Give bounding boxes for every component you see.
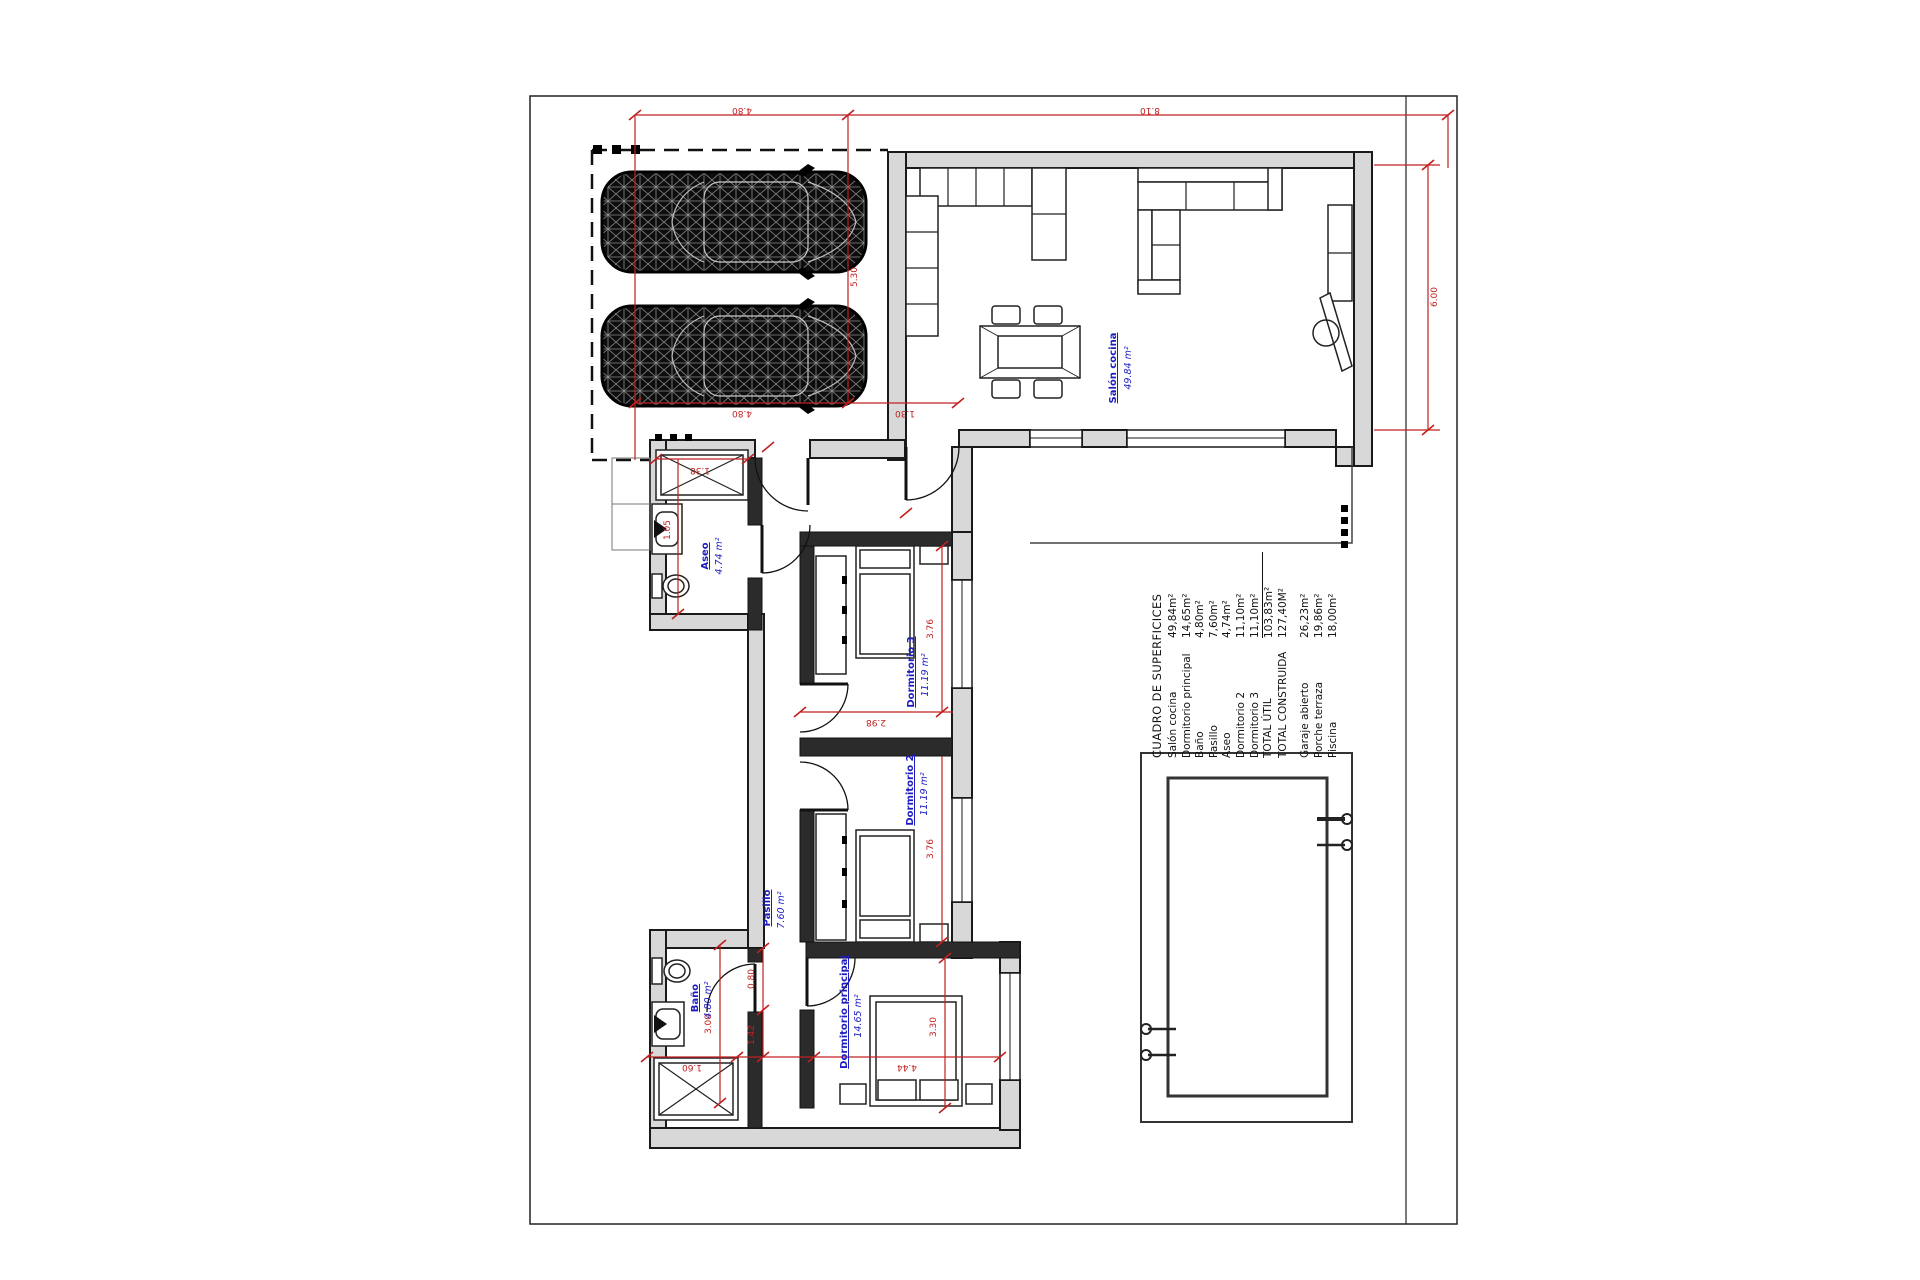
room-label-dorm3: Dormitorio 3: [906, 636, 917, 707]
table-row: Pasillo7,60m²: [1208, 552, 1222, 758]
table-gap: [1290, 552, 1299, 758]
entry-path: [612, 458, 650, 550]
table-row: Dormitorio 311,10m²: [1249, 552, 1263, 758]
row-label: Baño: [1194, 638, 1208, 758]
tv-unit: [1313, 205, 1352, 371]
room-area-dorm2: 11.19 m²: [919, 772, 930, 815]
table-row: Baño4,80m²: [1194, 552, 1208, 758]
room-area-salon: 49.84 m²: [1123, 346, 1134, 389]
dorm2-furniture: [816, 814, 948, 942]
row-value: 49,84m²: [1167, 552, 1181, 638]
room-area-aseo: 4.74 m²: [714, 537, 725, 574]
surface-table-content: CUADRO DE SUPERFICICES Salón cocina49,84…: [1150, 552, 1346, 758]
room-label-dormp: Dormitorio principal: [839, 955, 850, 1069]
row-value: 103,83m²: [1262, 552, 1277, 638]
row-value: 4,74m²: [1221, 552, 1235, 638]
row-label: Dormitorio 2: [1235, 638, 1249, 758]
floorplan-page: 4.80 8.10 5.30 4.80 1.30 6.00 3.76 2.98 …: [0, 0, 1920, 1280]
dim-lobby-width: 1.42: [747, 1025, 757, 1045]
table-row-total-util: TOTAL ÚTIL103,83m²: [1262, 552, 1277, 758]
row-label: TOTAL ÚTIL: [1262, 638, 1277, 758]
dim-aseo-width: 1.38: [690, 465, 710, 475]
row-label: Piscina: [1327, 638, 1341, 758]
table-row: Dormitorio principal14,65m²: [1181, 552, 1195, 758]
row-value: 18,00m²: [1327, 552, 1341, 638]
table-row-total-construida: TOTAL CONSTRUIDA127,40M²: [1277, 552, 1291, 758]
dim-top-right: 8.10: [1140, 105, 1160, 115]
dim-door-width: 0.80: [747, 969, 757, 989]
dim-garage-width-2: 4.80: [732, 408, 752, 418]
dim-dormp-width: 4.44: [897, 1062, 917, 1072]
dim-dorm3-width: 2.98: [866, 717, 886, 727]
car-2-icon: [602, 298, 866, 414]
row-label: Porche terraza: [1313, 638, 1327, 758]
room-area-dormp: 14.65 m²: [853, 994, 864, 1037]
sofa: [1138, 168, 1282, 294]
table-row: Piscina18,00m²: [1327, 552, 1341, 758]
row-label: Dormitorio 3: [1249, 638, 1263, 758]
car-1-icon: [602, 164, 866, 280]
floorplan-drawing: 4.80 8.10 5.30 4.80 1.30 6.00 3.76 2.98 …: [0, 0, 1920, 1280]
table-row: Porche terraza19,86m²: [1313, 552, 1327, 758]
row-value: 14,65m²: [1181, 552, 1195, 638]
surface-table-title: CUADRO DE SUPERFICICES: [1150, 552, 1164, 758]
row-value: 26,23m²: [1299, 552, 1313, 638]
row-value: 127,40M²: [1277, 552, 1291, 638]
row-value: 11,10m²: [1249, 552, 1263, 638]
room-label-bano: Baño: [690, 984, 701, 1012]
room-label-aseo: Aseo: [700, 542, 711, 569]
dining-table: [980, 306, 1080, 398]
dim-garage-width: 4.80: [732, 105, 752, 115]
dim-dormp-depth: 3.30: [929, 1017, 939, 1037]
dim-aseo-inner: 1.05: [663, 520, 673, 540]
room-area-dorm3: 11.19 m²: [920, 653, 931, 696]
surface-table: CUADRO DE SUPERFICICES Salón cocina49,84…: [1150, 552, 1346, 758]
dim-salon-gap: 1.30: [895, 408, 915, 418]
row-label: Pasillo: [1208, 638, 1222, 758]
table-row: Dormitorio 211,10m²: [1235, 552, 1249, 758]
row-value: 19,86m²: [1313, 552, 1327, 638]
dim-dorm3-depth: 3.76: [926, 619, 936, 639]
table-row: Garaje abierto26,23m²: [1299, 552, 1313, 758]
room-area-pasillo: 7.60 m²: [776, 891, 787, 928]
table-row: Aseo4,74m²: [1221, 552, 1235, 758]
pool: [1141, 753, 1352, 1122]
room-label-salon: Salón cocina: [1107, 333, 1119, 404]
row-value: 11,10m²: [1235, 552, 1249, 638]
room-label-pasillo: Pasillo: [762, 889, 773, 926]
room-label-dorm2: Dormitorio 2: [905, 754, 916, 825]
room-area-bano: 4.80 m²: [703, 981, 714, 1018]
dim-garage-depth: 5.30: [850, 267, 860, 287]
row-value: 4,80m²: [1194, 552, 1208, 638]
row-label: TOTAL CONSTRUIDA: [1277, 638, 1291, 758]
dim-dorm2-depth: 3.76: [926, 839, 936, 859]
row-value: 7,60m²: [1208, 552, 1222, 638]
row-label: Dormitorio principal: [1181, 638, 1195, 758]
row-label: Salón cocina: [1167, 638, 1181, 758]
dim-salon-depth: 6.00: [1430, 287, 1440, 307]
row-label: Aseo: [1221, 638, 1235, 758]
table-row: Salón cocina49,84m²: [1167, 552, 1181, 758]
row-label: Garaje abierto: [1299, 638, 1313, 758]
dim-bano-width: 1.60: [682, 1062, 702, 1072]
porch: [1030, 447, 1352, 548]
